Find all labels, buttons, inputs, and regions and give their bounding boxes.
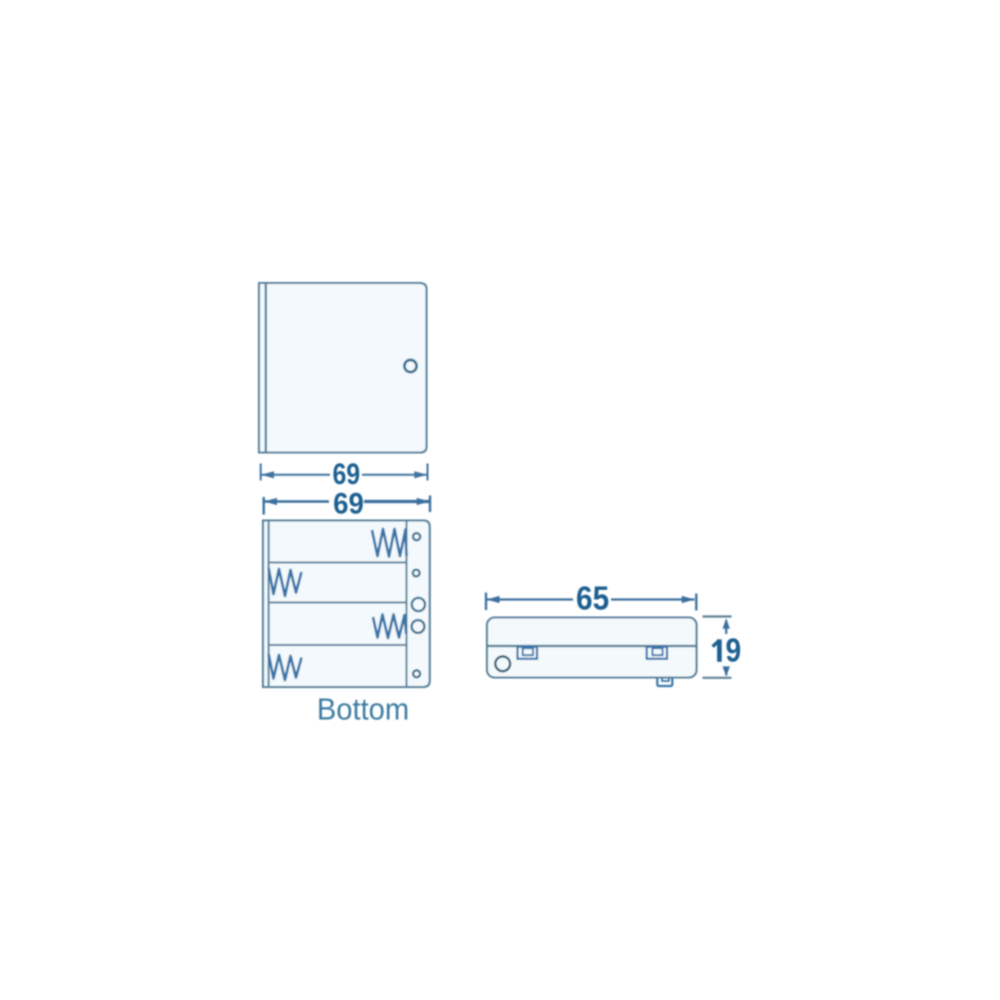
svg-text:69: 69	[332, 457, 360, 491]
svg-text:9: 9	[725, 631, 741, 669]
svg-text:Bottom: Bottom	[317, 693, 409, 727]
svg-text:65: 65	[576, 579, 609, 617]
svg-text:69: 69	[333, 487, 364, 520]
